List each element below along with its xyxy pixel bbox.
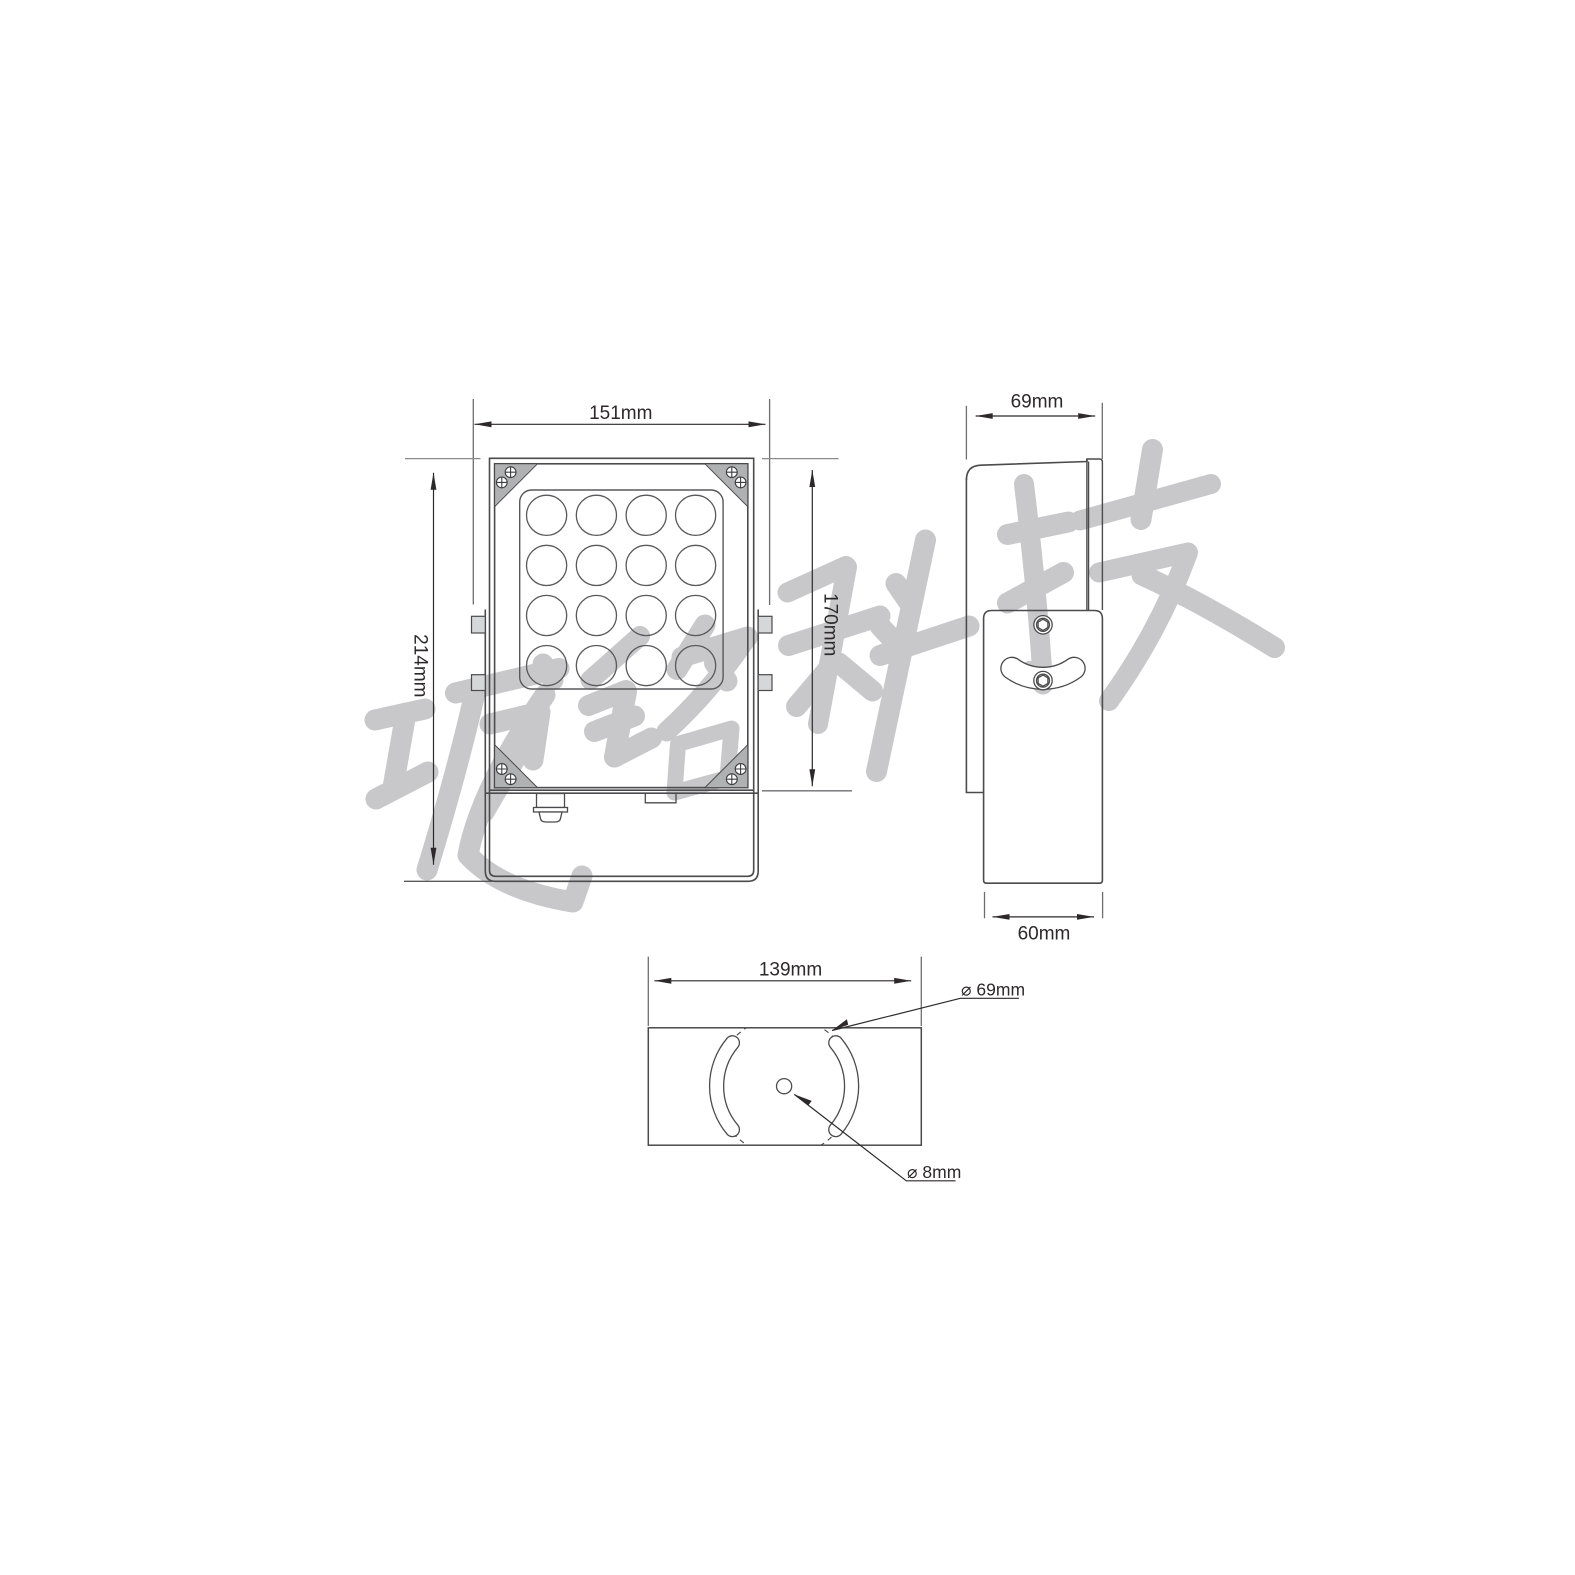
svg-text:151mm: 151mm: [589, 403, 652, 424]
svg-text:⌀ 8mm: ⌀ 8mm: [907, 1162, 961, 1182]
svg-text:69mm: 69mm: [1011, 392, 1064, 413]
svg-text:139mm: 139mm: [759, 959, 822, 980]
svg-text:214mm: 214mm: [410, 634, 431, 697]
svg-text:⌀ 69mm: ⌀ 69mm: [961, 980, 1025, 1000]
svg-text:170mm: 170mm: [820, 593, 841, 656]
svg-text:60mm: 60mm: [1018, 924, 1071, 945]
